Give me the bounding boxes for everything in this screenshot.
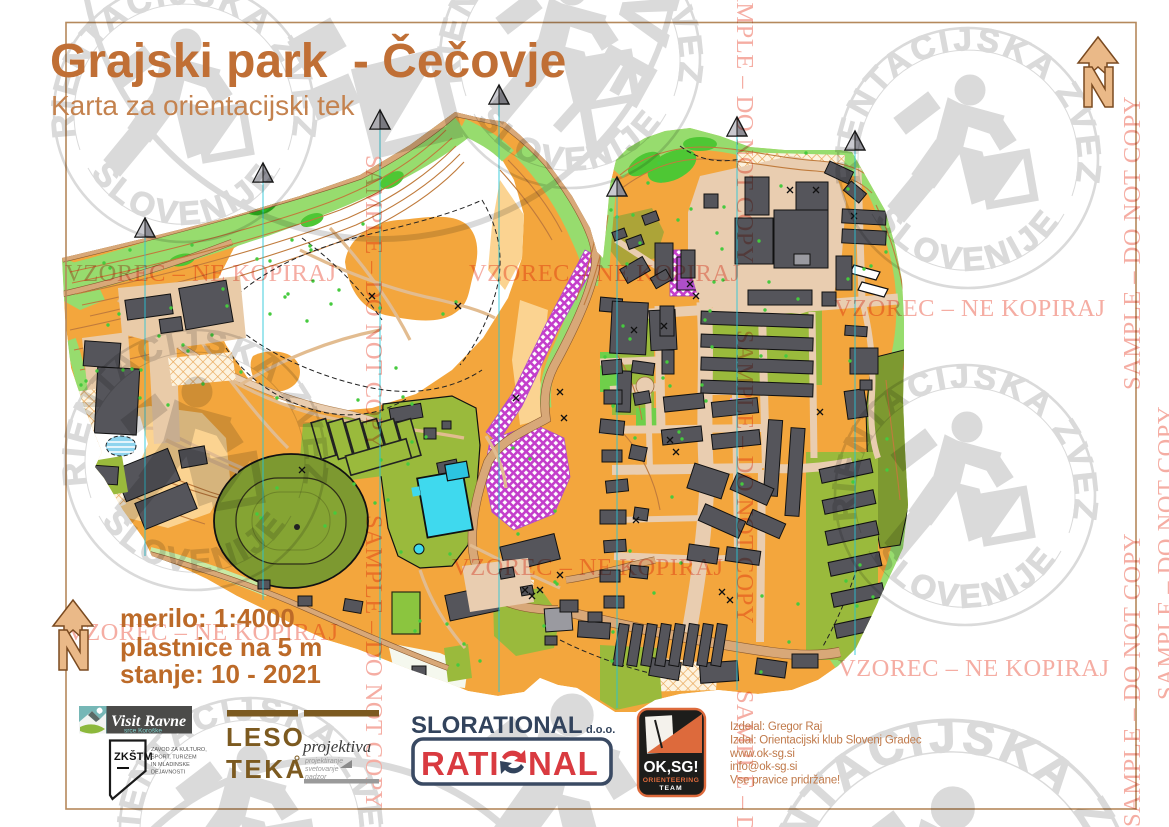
svg-text:SAMPLE – DO NOT COPY: SAMPLE – DO NOT COPY: [1153, 406, 1169, 700]
svg-text:DEJAVNOSTI: DEJAVNOSTI: [151, 770, 186, 776]
svg-text:projektiva: projektiva: [302, 737, 371, 756]
svg-text:plastnice na 5 m: plastnice na 5 m: [120, 632, 322, 662]
svg-text:ŠPORT, TURIZEM: ŠPORT, TURIZEM: [151, 754, 197, 761]
svg-text:VZOREC – NE KOPIRAJ: VZOREC – NE KOPIRAJ: [452, 554, 724, 581]
svg-text:ORIENTEERING: ORIENTEERING: [643, 777, 700, 784]
svg-text:SAMPLE – DO NOT COPY: SAMPLE – DO NOT COPY: [731, 0, 758, 264]
svg-text:svetovanje: svetovanje: [305, 766, 339, 773]
svg-text:ZAVOD ZA KULTURO,: ZAVOD ZA KULTURO,: [151, 747, 207, 753]
svg-text:projektiranje: projektiranje: [304, 758, 343, 765]
svg-text:VZOREC – NE KOPIRAJ: VZOREC – NE KOPIRAJ: [834, 295, 1106, 322]
svg-text:VZOREC – NE KOPIRAJ: VZOREC – NE KOPIRAJ: [65, 260, 337, 287]
svg-text:ZKŠTM: ZKŠTM: [114, 750, 153, 763]
svg-text:SAMPLE – DO NOT COPY: SAMPLE – DO NOT COPY: [360, 515, 387, 809]
svg-text:RATI: RATI: [421, 745, 500, 782]
svg-text:srce Koroške: srce Koroške: [124, 728, 162, 735]
svg-text:SLORATIONAL: SLORATIONAL: [411, 712, 583, 739]
svg-text:d.o.o.: d.o.o.: [586, 724, 615, 736]
svg-text:VZOREC – NE KOPIRAJ: VZOREC – NE KOPIRAJ: [838, 655, 1110, 682]
svg-text:SAMPLE – DO NOT COPY: SAMPLE – DO NOT COPY: [731, 330, 758, 624]
svg-text:NAL: NAL: [528, 745, 599, 782]
svg-text:www.ok-sg.si: www.ok-sg.si: [729, 748, 795, 760]
svg-text:TEAM: TEAM: [659, 785, 682, 792]
svg-text:OK,SG!: OK,SG!: [643, 759, 698, 776]
svg-text:Izdal: Orientacijski klub Slov: Izdal: Orientacijski klub Slovenj Gradec: [730, 734, 922, 746]
svg-text:IN MLADINSKE: IN MLADINSKE: [151, 762, 190, 768]
svg-text:SAMPLE – DO NOT COPY: SAMPLE – DO NOT COPY: [1119, 533, 1146, 827]
svg-text:SAMPLE – DO NOT COPY: SAMPLE – DO NOT COPY: [1119, 96, 1146, 390]
svg-text:VZOREC – NE KOPIRAJ: VZOREC – NE KOPIRAJ: [469, 260, 741, 287]
svg-text:Izdelal: Gregor Raj: Izdelal: Gregor Raj: [730, 721, 822, 733]
svg-text:info@ok-sg.si: info@ok-sg.si: [730, 761, 797, 773]
svg-text:stanje: 10 - 2021: stanje: 10 - 2021: [120, 659, 321, 689]
svg-text:Karta za orientacijski tek: Karta za orientacijski tek: [51, 90, 355, 121]
svg-text:Grajski park - Čečovje: Grajski park - Čečovje: [50, 33, 566, 88]
svg-text:LESO: LESO: [226, 722, 305, 752]
svg-text:Vse pravice pridržane!: Vse pravice pridržane!: [730, 775, 840, 787]
svg-text:SAMPLE – DO NOT COPY: SAMPLE – DO NOT COPY: [360, 155, 387, 449]
svg-text:merilo: 1:4000: merilo: 1:4000: [120, 603, 295, 633]
